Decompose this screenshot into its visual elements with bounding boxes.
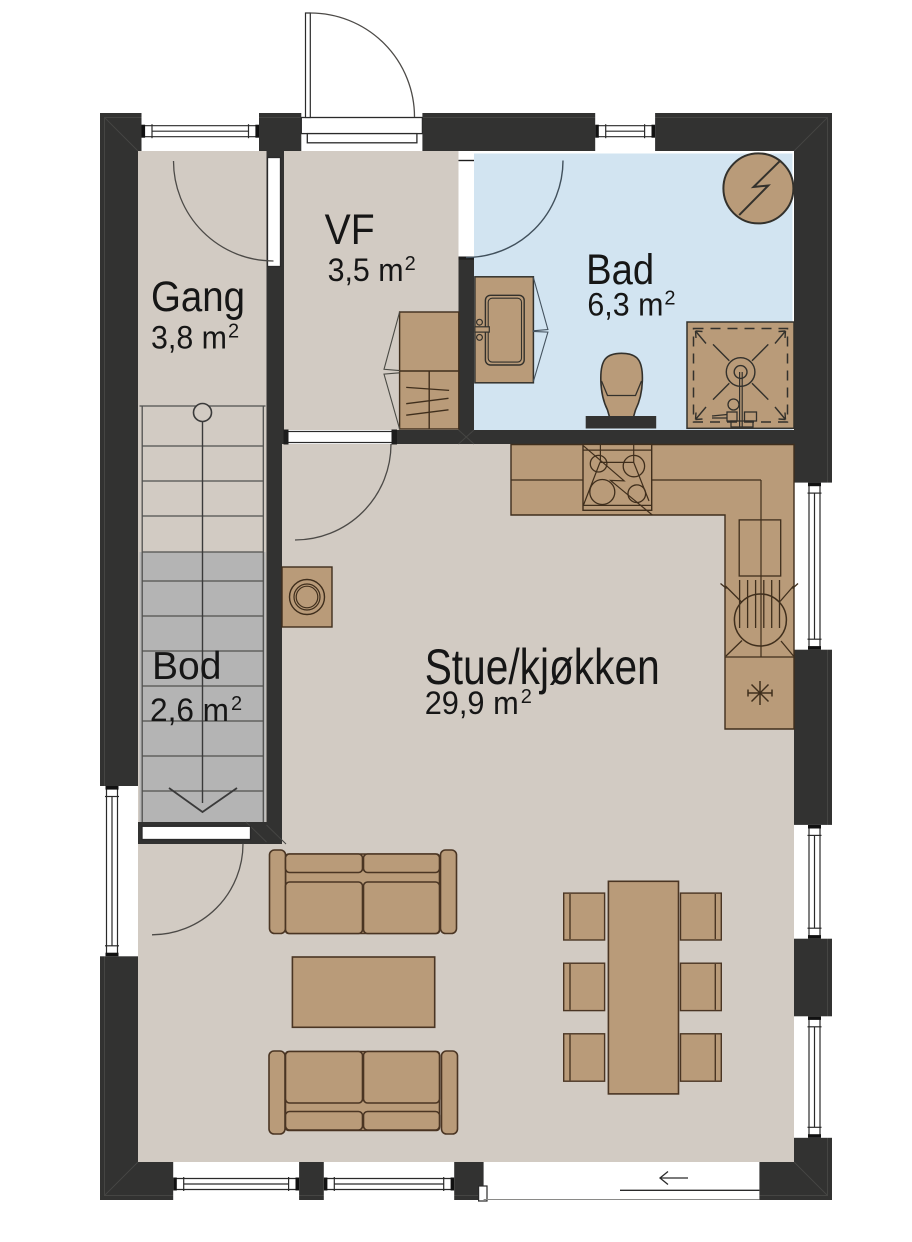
svg-text:Gang: Gang bbox=[151, 273, 245, 321]
svg-text:6,3 m: 6,3 m bbox=[587, 287, 663, 323]
svg-text:2: 2 bbox=[231, 693, 242, 715]
svg-text:29,9 m: 29,9 m bbox=[425, 685, 519, 721]
svg-text:2: 2 bbox=[664, 288, 675, 310]
svg-text:2: 2 bbox=[521, 686, 532, 708]
svg-text:2: 2 bbox=[228, 320, 239, 342]
svg-text:2: 2 bbox=[405, 253, 416, 275]
svg-text:VF: VF bbox=[325, 206, 375, 254]
svg-text:3,5 m: 3,5 m bbox=[328, 252, 404, 288]
svg-text:2,6 m: 2,6 m bbox=[150, 692, 229, 728]
svg-text:Bod: Bod bbox=[152, 645, 222, 688]
svg-text:3,8 m: 3,8 m bbox=[151, 319, 227, 355]
